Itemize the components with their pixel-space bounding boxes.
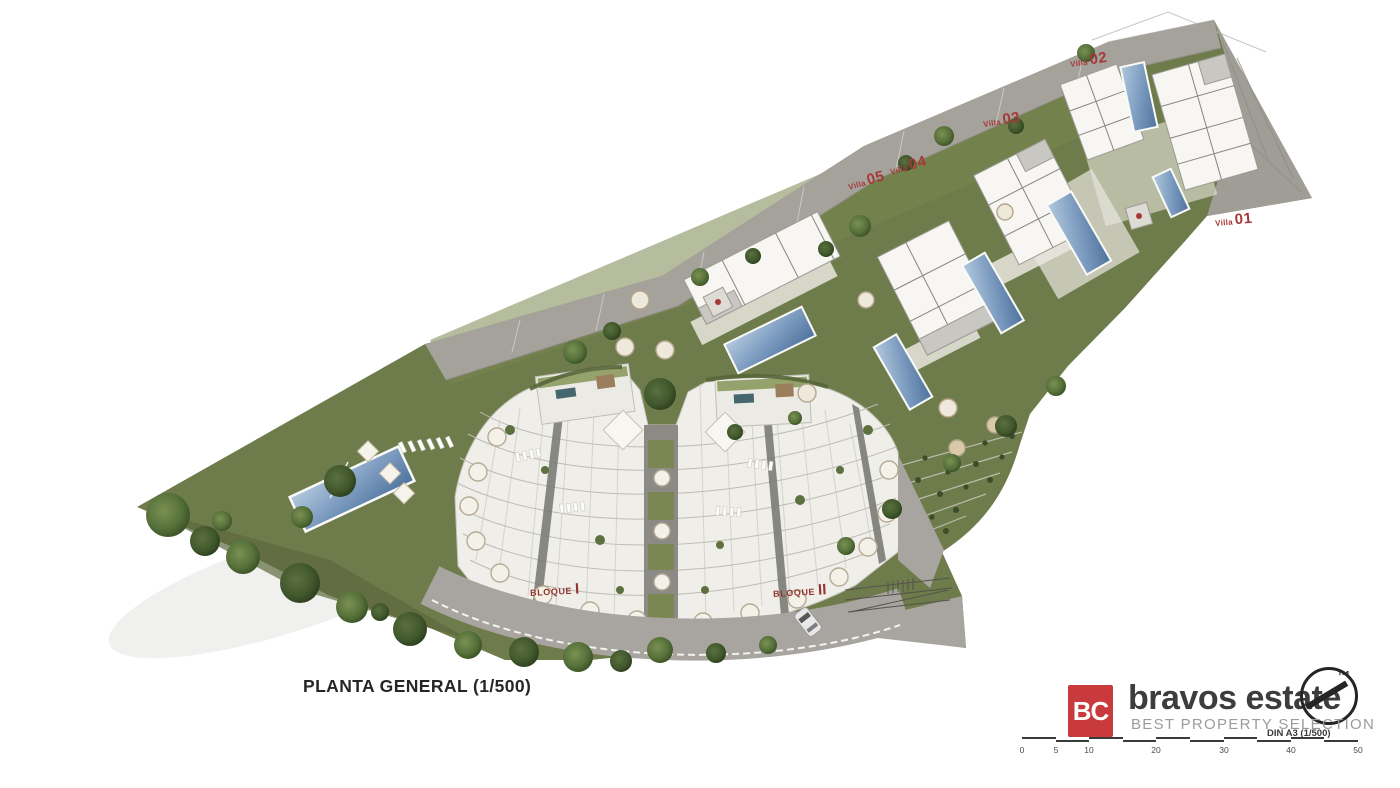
brand-tagline: BEST PROPERTY SELECTION	[1131, 716, 1375, 733]
scale-bar-segment	[1291, 737, 1324, 739]
scale-bar-segment	[1089, 737, 1123, 739]
scale-bar-segment	[1123, 740, 1156, 742]
plan-title: PLANTA GENERAL (1/500)	[303, 676, 531, 697]
scale-bar-segment	[1257, 740, 1291, 742]
site-plan-rendering	[0, 0, 1400, 788]
villa-label-prefix: Villa	[847, 178, 867, 191]
scale-tick-label: 30	[1219, 745, 1228, 755]
scale-tick-label: 0	[1020, 745, 1025, 755]
villa-label-prefix: Villa	[983, 118, 1002, 129]
block-label-numeral: I	[575, 580, 580, 597]
scale-bar-segment	[1156, 737, 1190, 739]
scale-tick-label: 20	[1151, 745, 1160, 755]
scale-tick-label: 50	[1353, 745, 1362, 755]
scale-tick-label: 10	[1084, 745, 1093, 755]
villa-label-prefix: Villa	[889, 163, 909, 176]
scale-bar-segment	[1224, 737, 1257, 739]
scale-tick-label: 40	[1286, 745, 1295, 755]
brand-logo-mark: BC	[1068, 685, 1113, 737]
scale-tick-label: 5	[1054, 745, 1059, 755]
block-label-1: BLOQUE I	[530, 580, 580, 600]
scale-bar-segment	[1190, 740, 1224, 742]
block-label-name: BLOQUE	[773, 587, 816, 599]
site-plan-page: Villa 02 Villa 03 Villa 04 Villa 05 Vill…	[0, 0, 1400, 788]
scale-bar-segment	[1324, 740, 1358, 742]
trademark-symbol: ™	[1337, 668, 1350, 683]
block-label-numeral: II	[818, 581, 827, 598]
villa-label-number: 03	[1001, 109, 1021, 128]
block-label-2: BLOQUE II	[773, 581, 827, 601]
brand-monogram: BC	[1073, 696, 1109, 727]
scale-bar: 0 5 10 20 30 40 50	[1022, 737, 1358, 755]
scale-bar-segment	[1022, 737, 1056, 739]
villa-label-number: 01	[1234, 210, 1253, 228]
scale-bar-segment	[1056, 740, 1089, 742]
villa-label-prefix: Villa	[1070, 58, 1089, 69]
villa-label-01: Villa 01	[1214, 210, 1253, 230]
block-label-name: BLOQUE	[530, 586, 573, 598]
villa-label-prefix: Villa	[1215, 217, 1234, 228]
villa-label-number: 02	[1088, 49, 1108, 68]
